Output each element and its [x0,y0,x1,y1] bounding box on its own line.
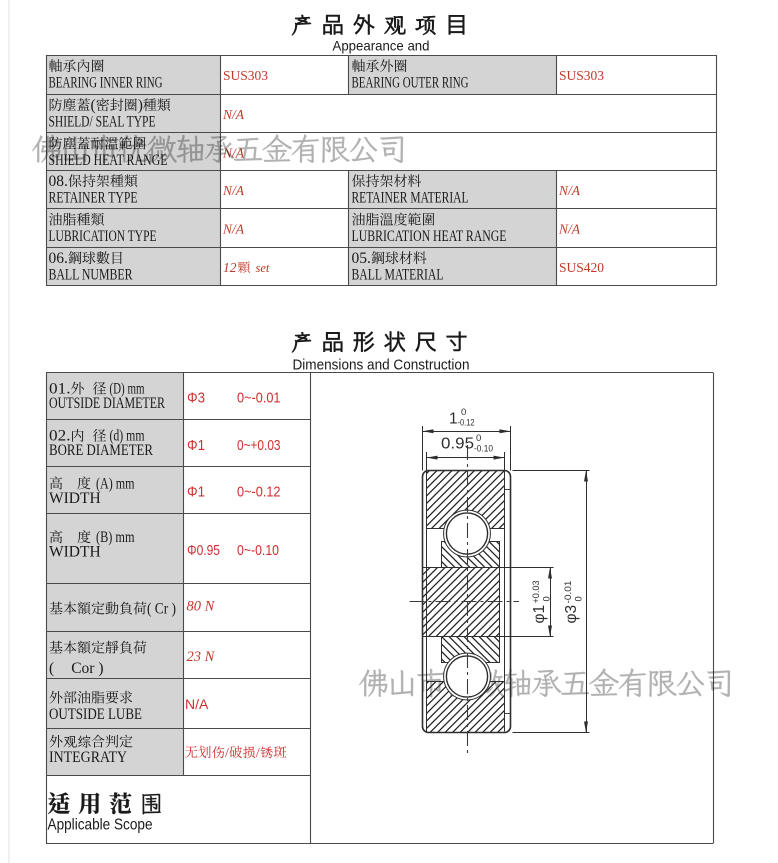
svg-text:Cor ): Cor ) [71,660,103,677]
svg-text:80 N: 80 N [187,598,216,614]
svg-text:0: 0 [476,433,481,444]
svg-text:BEARING INNER RING: BEARING INNER RING [49,74,163,91]
svg-text:N/A: N/A [222,107,245,122]
svg-text:Dimensions and Construction: Dimensions and Construction [293,357,470,374]
svg-text:0~-0.12: 0~-0.12 [237,484,281,501]
svg-text:SUS303: SUS303 [223,68,268,83]
svg-text:0~-0.10: 0~-0.10 [237,542,279,559]
svg-text:BORE DIAMETER: BORE DIAMETER [49,442,154,459]
svg-text:12: 12 [223,260,237,275]
svg-text:LUBRICATION HEAT RANGE: LUBRICATION HEAT RANGE [352,228,507,245]
svg-text:Φ3: Φ3 [187,390,205,407]
svg-text:INTEGRATY: INTEGRATY [49,749,127,766]
svg-text:N/A: N/A [222,222,245,237]
svg-text:N/A: N/A [558,222,581,237]
svg-text:Φ1: Φ1 [187,437,205,454]
svg-text:OUTSIDE DIAMETER: OUTSIDE DIAMETER [49,395,166,412]
svg-text:): ) [138,97,143,114]
svg-text:SHIELD/ SEAL TYPE: SHIELD/ SEAL TYPE [49,113,156,130]
svg-text:Φ0.95: Φ0.95 [187,542,220,559]
svg-text:SUS420: SUS420 [559,260,604,275]
svg-text:-0.01: -0.01 [563,581,574,604]
svg-text:WIDTH: WIDTH [49,544,101,561]
svg-text:0: 0 [542,596,553,601]
svg-text:Φ1: Φ1 [187,484,205,501]
svg-text:RETAINER MATERIAL: RETAINER MATERIAL [352,189,469,206]
svg-text:N/A: N/A [222,183,245,198]
svg-text:0~-0.01: 0~-0.01 [237,390,281,407]
svg-text:BEARING OUTER RING: BEARING OUTER RING [352,74,469,91]
svg-text:23 N: 23 N [187,649,216,665]
svg-text:WIDTH: WIDTH [49,490,101,507]
svg-text:N/A: N/A [558,183,581,198]
svg-text:(: ( [91,97,96,114]
svg-text:1: 1 [449,411,458,428]
svg-text:08.: 08. [49,173,68,190]
svg-text:φ1: φ1 [531,605,548,624]
svg-text:set: set [256,261,270,275]
svg-text:-0.12: -0.12 [458,418,475,429]
svg-text:0: 0 [574,596,585,601]
svg-text:0.95: 0.95 [441,436,474,453]
svg-text:/: / [225,746,229,761]
svg-text:LUBRICATION TYPE: LUBRICATION TYPE [49,228,157,245]
svg-text:(: ( [49,660,54,677]
svg-text:+0.03: +0.03 [531,581,542,604]
svg-text:(A) mm: (A) mm [96,475,135,492]
svg-text:(B) mm: (B) mm [96,529,135,546]
svg-text:BALL MATERIAL: BALL MATERIAL [352,266,444,283]
svg-text:-0.10: -0.10 [474,444,493,455]
svg-text:OUTSIDE LUBE: OUTSIDE LUBE [49,706,142,723]
svg-text:SUS303: SUS303 [559,68,604,83]
svg-text:05.: 05. [352,250,371,267]
svg-text:Appearance and: Appearance and [333,38,430,54]
svg-text:( Cr ): ( Cr ) [147,600,176,617]
svg-text:/: / [256,746,260,761]
svg-text:06.: 06. [49,250,68,267]
svg-text:BALL NUMBER: BALL NUMBER [49,266,133,283]
svg-text:φ3: φ3 [563,605,580,624]
svg-text:N/A: N/A [185,696,209,712]
svg-text:Applicable Scope: Applicable Scope [48,817,153,834]
svg-text:RETAINER TYPE: RETAINER TYPE [49,189,138,206]
svg-text:0~+0.03: 0~+0.03 [237,437,281,454]
